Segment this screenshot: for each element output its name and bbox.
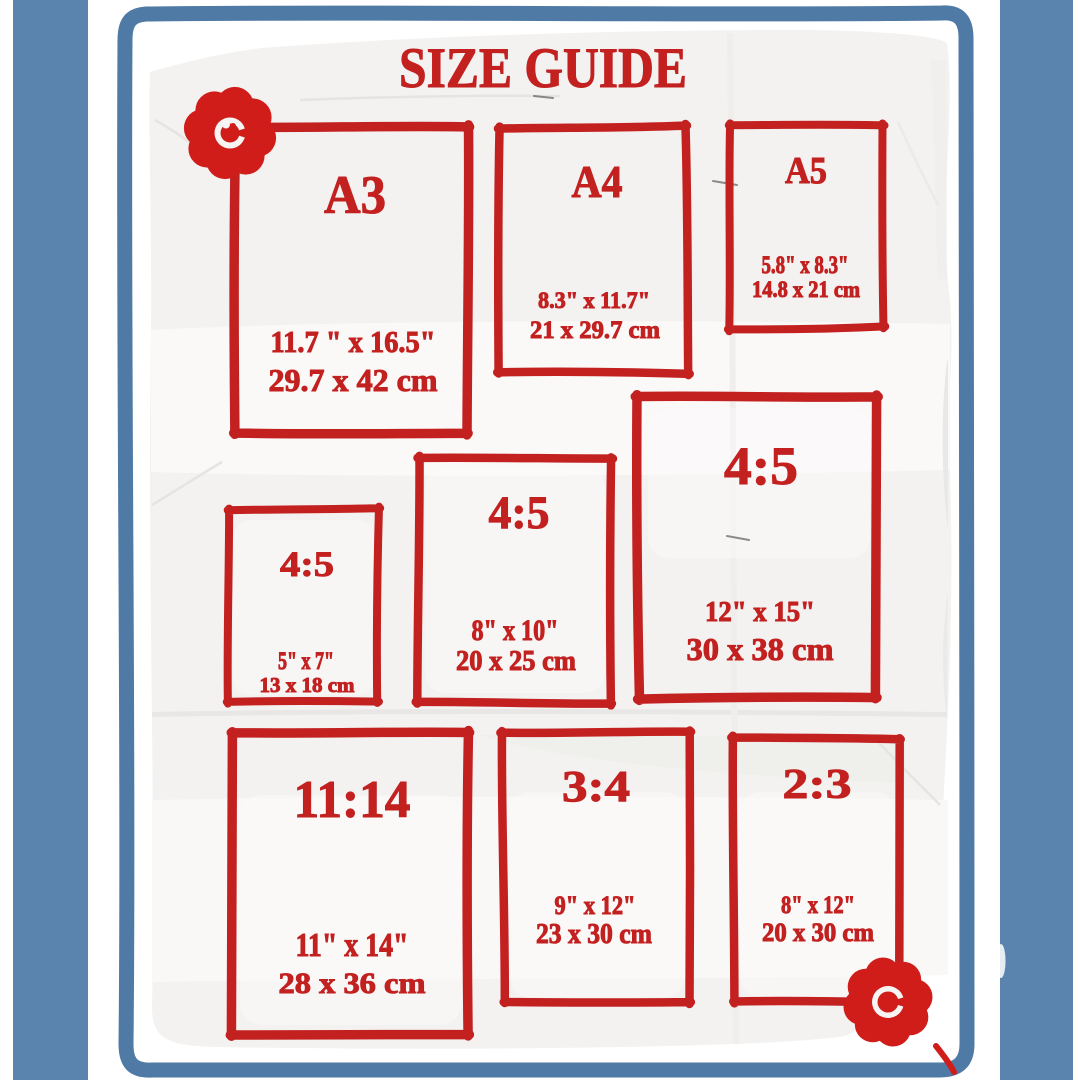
svg-text:28 x 36 cm: 28 x 36 cm [279,967,426,1000]
svg-text:8.3" x 11.7": 8.3" x 11.7" [538,288,650,314]
svg-text:3:4: 3:4 [562,762,630,811]
svg-text:A5: A5 [785,150,827,192]
svg-text:12" x 15": 12" x 15" [705,596,815,628]
svg-text:29.7 x 42 cm: 29.7 x 42 cm [269,362,438,398]
svg-text:11" x 14": 11" x 14" [296,927,409,964]
svg-text:30 x 38 cm: 30 x 38 cm [687,631,834,667]
svg-text:23 x 30 cm: 23 x 30 cm [536,919,652,950]
svg-text:13 x 18 cm: 13 x 18 cm [260,673,355,697]
svg-text:A3: A3 [324,165,386,225]
svg-text:20 x 25 cm: 20 x 25 cm [456,646,576,677]
svg-text:A4: A4 [572,157,623,207]
svg-text:4:5: 4:5 [280,544,334,584]
svg-text:8" x 12": 8" x 12" [781,890,855,919]
svg-text:9" x 12": 9" x 12" [555,890,636,920]
svg-text:8" x 10": 8" x 10" [472,614,559,647]
svg-text:5" x 7": 5" x 7" [278,648,334,675]
svg-text:5.8" x 8.3": 5.8" x 8.3" [762,252,849,279]
svg-text:2:3: 2:3 [783,762,852,808]
svg-text:SIZE GUIDE: SIZE GUIDE [399,37,687,100]
svg-text:21 x 29.7 cm: 21 x 29.7 cm [530,315,660,344]
svg-text:11:14: 11:14 [294,771,411,829]
svg-text:20 x 30 cm: 20 x 30 cm [762,917,874,947]
svg-text:11.7 " x 16.5": 11.7 " x 16.5" [271,325,436,359]
svg-text:4:5: 4:5 [724,436,798,496]
svg-text:14.8 x 21 cm: 14.8 x 21 cm [752,277,860,302]
svg-text:4:5: 4:5 [489,487,550,539]
